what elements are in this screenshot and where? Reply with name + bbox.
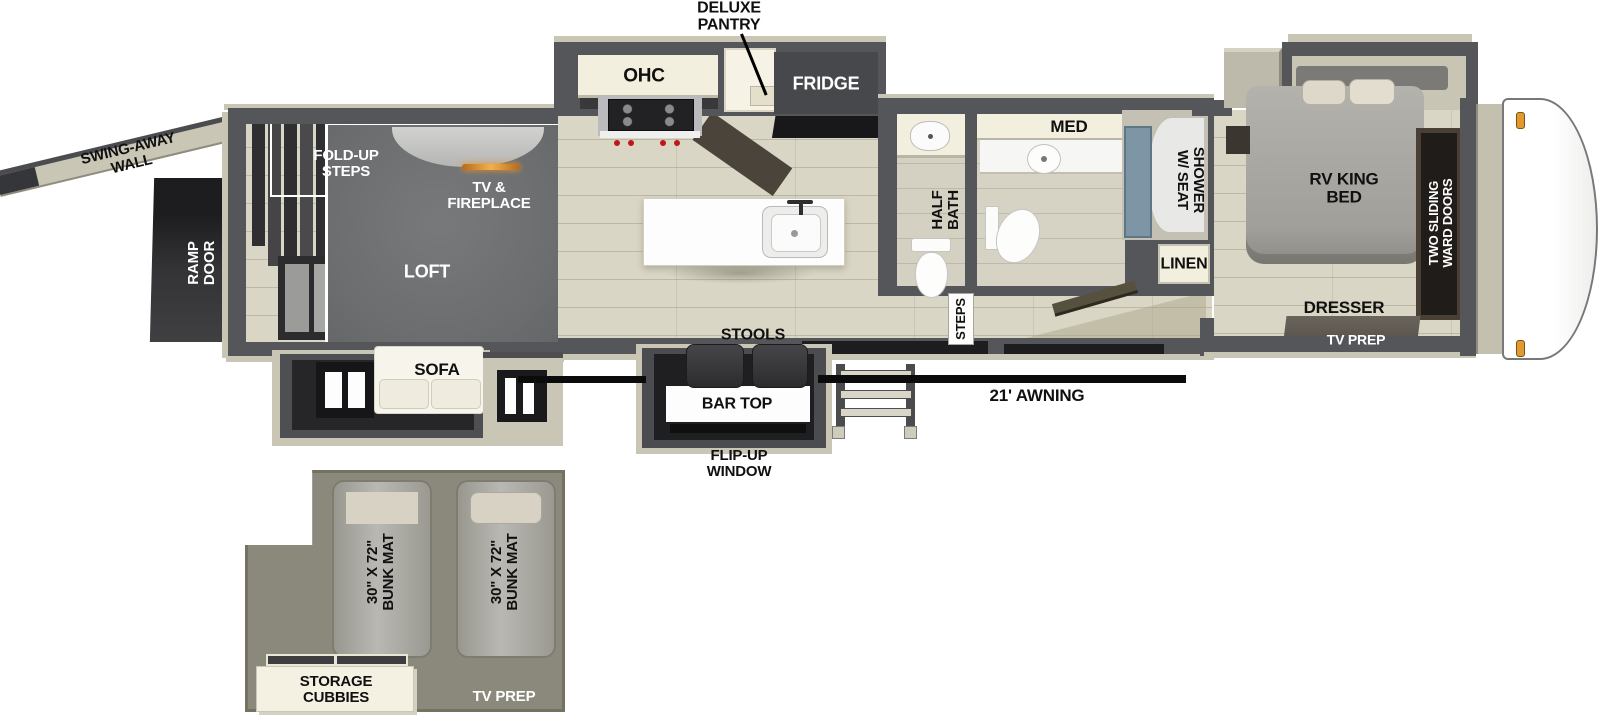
nightstand — [1226, 126, 1250, 154]
window-pane — [505, 378, 516, 414]
sofa-label: SOFA — [414, 361, 460, 379]
marker-light — [1516, 340, 1525, 357]
flip-up-window-label: FLIP-UP WINDOW — [707, 448, 772, 480]
tv-fireplace-label: TV & FIREPLACE — [447, 180, 530, 212]
front-cap — [1502, 98, 1598, 360]
med-label: MED — [1050, 118, 1087, 136]
entry-step-foot — [832, 426, 845, 439]
sofa-seat — [431, 379, 481, 409]
toilet-bowl — [915, 252, 948, 298]
window-pane — [348, 372, 365, 408]
pillow — [1302, 80, 1346, 105]
storage-cubbies-label: STORAGE CUBBIES — [300, 674, 373, 706]
garage-top-wall — [228, 108, 562, 124]
bedroom-bottom-wall — [1204, 352, 1476, 358]
toilet-tank — [911, 238, 951, 252]
ohc-label: OHC — [623, 67, 665, 88]
sink-faucet — [799, 203, 803, 215]
hall-steps-label: STEPS — [954, 298, 968, 340]
stools-label: STOOLS — [721, 326, 785, 343]
bottom-window — [1004, 344, 1164, 354]
sink-drain — [791, 230, 798, 237]
linen-label: LINEN — [1160, 255, 1207, 272]
island-sink — [762, 206, 828, 258]
sink-drain — [928, 134, 933, 139]
bar-top-label: BAR TOP — [702, 395, 772, 412]
garage-rear-wall — [228, 108, 246, 358]
awning-line — [518, 376, 646, 383]
entry-step-foot — [904, 426, 917, 439]
stool — [752, 344, 808, 388]
flip-up-window-strip — [670, 424, 806, 433]
bunk-pillow — [346, 492, 418, 524]
tv-prep-bedroom-label: TV PREP — [1327, 332, 1386, 347]
shower-label: SHOWER W/ SEAT — [1174, 147, 1206, 213]
rv-king-bed-label: RV KING BED — [1309, 171, 1378, 208]
window-pane — [325, 372, 342, 408]
stove-trim — [600, 131, 700, 138]
half-bath-label: HALF BATH — [930, 190, 962, 230]
stove-cooktop — [608, 99, 694, 131]
dresser-label: DRESSER — [1304, 299, 1385, 317]
rv-floorplan: DELUXE PANTRY OHC FRIDGE MED SHOWER W/ S… — [0, 0, 1600, 726]
stove-knob — [674, 140, 680, 146]
window-pane — [523, 378, 534, 414]
fireplace-glow — [462, 164, 520, 170]
stove-knob — [628, 140, 634, 146]
fridge-label: FRIDGE — [793, 74, 860, 93]
swing-away-wall-end — [0, 167, 39, 195]
sofa-window — [316, 362, 374, 418]
marker-light — [1516, 112, 1525, 129]
sofa-seat — [379, 379, 429, 409]
bedroom-right-wall — [1460, 98, 1476, 356]
bunk-mat-right-label: 30" X 72" BUNK MAT — [489, 533, 521, 610]
ward-doors-label: TWO SLIDING WARD DOORS — [1427, 178, 1455, 267]
entry-step-tread — [840, 390, 912, 399]
shower-glass — [1124, 126, 1152, 238]
main-bath — [977, 114, 1125, 286]
sofa — [374, 346, 484, 414]
storage-cubbies-top — [266, 654, 408, 666]
sink-drain — [1041, 156, 1047, 162]
stool — [686, 344, 744, 388]
awning-line — [818, 375, 1186, 383]
window-pane — [285, 264, 309, 332]
entry-step-tread — [840, 408, 912, 417]
cubby-divider — [334, 656, 337, 664]
loft-label: LOFT — [404, 262, 450, 281]
fold-up-steps-label: FOLD-UP STEPS — [313, 148, 378, 180]
stove-knob — [614, 140, 620, 146]
bunk-pillow — [470, 492, 542, 524]
deluxe-pantry-label: DELUXE PANTRY — [697, 0, 761, 34]
pillow — [1349, 79, 1395, 105]
stove-knob — [660, 140, 666, 146]
ramp-door-label: RAMP DOOR — [186, 241, 218, 285]
fold-up-steps-treads — [252, 118, 265, 246]
awning-label: 21' AWNING — [990, 387, 1085, 405]
tv-prep-bunk-label: TV PREP — [473, 689, 536, 705]
bathroom-top-edge — [878, 94, 1214, 98]
bunk-mat-left-label: 30" X 72" BUNK MAT — [365, 533, 397, 610]
